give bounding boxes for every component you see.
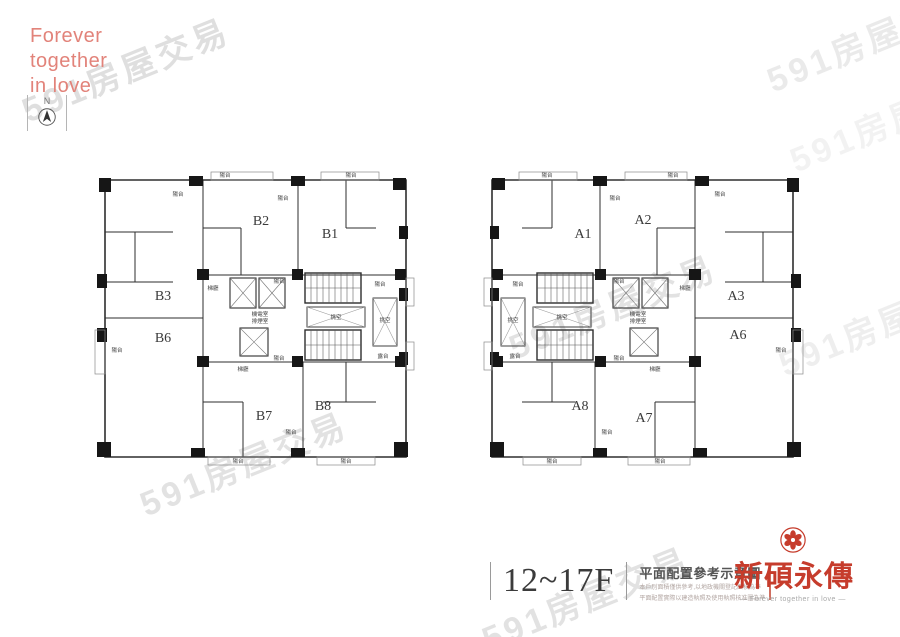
- plan-annotation: 陽台: [172, 190, 184, 198]
- plan-annotation: 梯廳: [679, 284, 691, 292]
- unit-label-B6: B6: [155, 331, 171, 346]
- floor-plan-left: B2B1B3B6B7B8陽台陽台陽台陽台梯廳機電室排煙室梯廳挑空挑空陽台陽台陽台…: [93, 170, 420, 470]
- compass-icon: [36, 106, 58, 128]
- plan-annotation: 排煙室: [630, 317, 647, 325]
- plan-annotation: 露台: [509, 352, 521, 360]
- plan-annotation: 陽台: [613, 354, 625, 362]
- plan-annotation: 陽台: [654, 457, 666, 465]
- slogan-line-1: Forever: [30, 24, 107, 49]
- unit-label-B1: B1: [322, 227, 338, 242]
- plan-annotation: 陽台: [111, 346, 123, 354]
- plan-annotation: 梯廳: [207, 284, 219, 292]
- unit-label-A6: A6: [729, 328, 746, 343]
- plan-annotation: 機電室: [630, 310, 647, 318]
- plan-annotation: 挑空: [507, 316, 519, 324]
- plan-annotation: 陽台: [277, 194, 289, 202]
- watermark-text: 591房屋交易: [781, 54, 900, 182]
- floor-plan-right: A1A2A3A6A8A7陽台陽台陽台陽台梯廳機電室排煙室梯廳挑空挑空陽台陽台陽台…: [478, 170, 805, 470]
- plan-annotation: 陽台: [667, 171, 679, 179]
- plan-annotation: 陽台: [374, 280, 386, 288]
- unit-label-A7: A7: [635, 411, 652, 426]
- plan-annotation: 陽台: [541, 171, 553, 179]
- unit-label-B8: B8: [315, 399, 331, 414]
- plan-annotation: 陽台: [546, 457, 558, 465]
- plan-annotation: 陽台: [232, 457, 244, 465]
- unit-label-B3: B3: [155, 289, 171, 304]
- plan-annotation: 露台: [377, 352, 389, 360]
- plan-annotation: 陽台: [219, 171, 231, 179]
- plan-annotation: 陽台: [345, 171, 357, 179]
- compass: N: [27, 95, 67, 131]
- logo-flower-icon: [779, 526, 807, 554]
- compass-north-label: N: [44, 96, 51, 106]
- plan-annotation: 挑空: [330, 313, 342, 321]
- logo-tagline: — Forever together in love —: [734, 596, 852, 603]
- unit-label-A2: A2: [634, 213, 651, 228]
- plan-annotation: 陽台: [273, 277, 285, 285]
- plan-annotation: 陽台: [714, 190, 726, 198]
- unit-label-A1: A1: [574, 227, 591, 242]
- unit-label-A3: A3: [727, 289, 744, 304]
- plan-annotation: 梯廳: [237, 365, 249, 373]
- brand-slogan: Forever together in love: [30, 24, 107, 99]
- plan-annotation: 陽台: [613, 277, 625, 285]
- footer-divider-1: [490, 562, 491, 600]
- plan-annotation: 陽台: [285, 428, 297, 436]
- plan-annotation: 陽台: [512, 280, 524, 288]
- footer-divider-2: [626, 562, 627, 600]
- logo-name: 新碩永傳: [734, 561, 852, 593]
- plan-annotation: 陽台: [273, 354, 285, 362]
- slogan-line-2: together: [30, 49, 107, 74]
- floor-range: 12~17F: [503, 562, 614, 600]
- plan-annotation: 陽台: [601, 428, 613, 436]
- plan-annotation: 陽台: [609, 194, 621, 202]
- plan-annotation: 梯廳: [649, 365, 661, 373]
- developer-logo: 新碩永傳 — Forever together in love —: [734, 526, 852, 603]
- plan-annotation: 挑空: [556, 313, 568, 321]
- unit-label-B2: B2: [253, 214, 269, 229]
- page-canvas: 591房屋交易591房屋交易591房屋交易591房屋交易591房屋交易591房屋…: [0, 0, 900, 637]
- plan-annotation: 陽台: [775, 346, 787, 354]
- plan-annotation: 挑空: [379, 316, 391, 324]
- plan-annotation: 排煙室: [252, 317, 269, 325]
- unit-label-A8: A8: [571, 399, 588, 414]
- plan-annotation: 機電室: [252, 310, 269, 318]
- watermark-text: 591房屋交易: [758, 0, 900, 102]
- unit-label-B7: B7: [256, 409, 272, 424]
- footer: 12~17F 平面配置參考示意圖 本戶別面積僅供參考,以地政機關登記面積為準 平…: [490, 562, 771, 603]
- plan-annotation: 陽台: [340, 457, 352, 465]
